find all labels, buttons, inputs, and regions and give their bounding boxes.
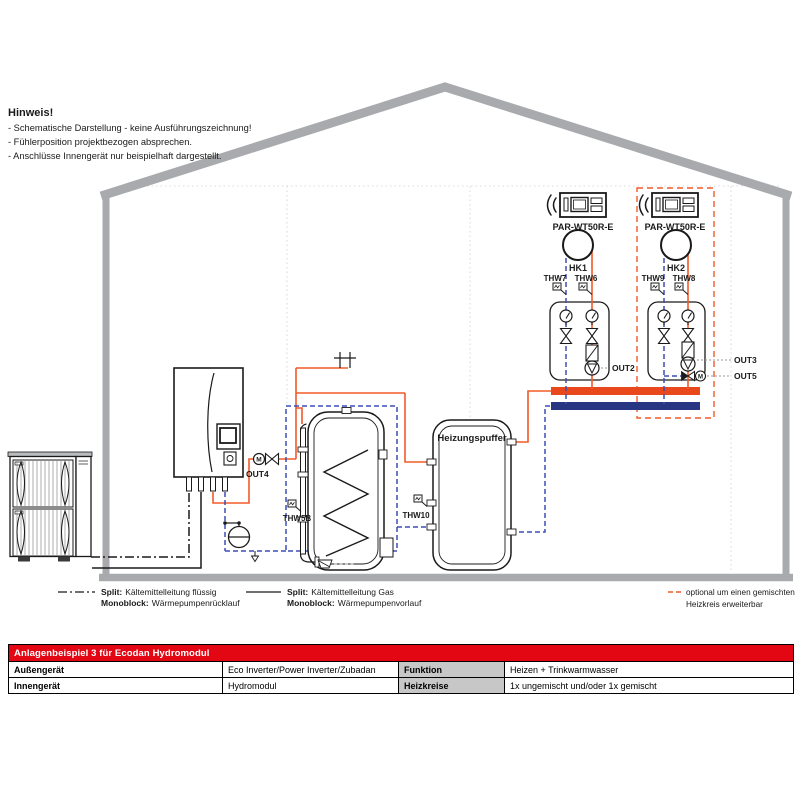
svg-text:THW10: THW10 [402, 511, 430, 520]
outdoor-unit [8, 452, 92, 562]
out4-label: OUT4 [246, 469, 269, 479]
heating-circuit-hk1: HK1 [563, 230, 593, 273]
return-manifold-bar [551, 402, 700, 410]
svg-text:M: M [256, 457, 261, 464]
out3-label: OUT3 [734, 355, 757, 365]
controller-hk1: PAR-WT50R-E [548, 193, 614, 232]
svg-text:Monoblock:Wärmepumpenrücklauf: Monoblock:Wärmepumpenrücklauf [101, 598, 240, 608]
legend-item-liquid: Split:Kältemittelleitung flüssig Monoblo… [58, 587, 240, 608]
row-value: Eco Inverter/Power Inverter/Zubadan [223, 662, 399, 677]
hinweis-item: - Anschlüsse Innengerät nur beispielhaft… [8, 151, 221, 161]
expansion-vessel [223, 521, 249, 547]
controller-hk2: PAR-WT50R-E [640, 193, 706, 232]
spec-table: Anlagenbeispiel 3 für Ecodan Hydromodul … [8, 644, 794, 694]
sensor-thw7: THW7 [544, 274, 567, 295]
buffer-tank-label: Heizungspuffer [437, 433, 506, 444]
fan-section-top [13, 460, 73, 507]
dhw-tank [298, 408, 393, 571]
table-row: Außengerät Eco Inverter/Power Inverter/Z… [9, 661, 793, 677]
table-row: Innengerät Hydromodul Heizkreise 1x unge… [9, 677, 793, 693]
wireless-signal-icon [646, 198, 649, 212]
row-label: Heizkreise [399, 678, 505, 693]
pump-icon [681, 357, 695, 371]
schematic-page: Hinweis! - Schematische Darstellung - ke… [0, 0, 800, 800]
out5-label: OUT5 [734, 371, 757, 381]
sensor-thw6: THW6 [575, 274, 598, 295]
svg-text:M: M [698, 375, 703, 381]
svg-text:THW9: THW9 [642, 274, 665, 283]
fan-section-bottom [13, 509, 73, 556]
svg-text:Monoblock:Wärmepumpenvorlauf: Monoblock:Wärmepumpenvorlauf [287, 598, 422, 608]
svg-text:THW6: THW6 [575, 274, 598, 283]
flow-manifold-bar [551, 387, 700, 395]
hinweis-item: - Schematische Darstellung - keine Ausfü… [8, 123, 251, 133]
svg-text:optional um einen gemischten: optional um einen gemischten [686, 588, 795, 597]
pump-group-hk1 [550, 302, 609, 380]
hinweis-note: Hinweis! - Schematische Darstellung - ke… [8, 107, 251, 161]
svg-text:Split:Kältemittelleitung flüss: Split:Kältemittelleitung flüssig [101, 587, 217, 597]
svg-text:THW8: THW8 [673, 274, 696, 283]
pipe-stubs [187, 477, 228, 491]
hinweis-item: - Fühlerposition projektbezogen absprech… [8, 137, 192, 147]
drain-valve-icon [252, 551, 259, 562]
row-value: Hydromodul [223, 678, 399, 693]
buffer-tank: Heizungspuffer [427, 420, 516, 570]
svg-text:HK1: HK1 [569, 263, 587, 273]
legend-item-gas: Split:Kältemittelleitung Gas Monoblock:W… [246, 587, 422, 608]
wireless-signal-icon [554, 198, 557, 212]
sensor-thw9: THW9 [642, 274, 665, 295]
sensor-thw5b: THW5B [283, 500, 312, 523]
heater-flange [380, 538, 393, 557]
spec-table-title: Anlagenbeispiel 3 für Ecodan Hydromodul [9, 645, 793, 661]
indoor-unit [174, 368, 243, 491]
row-label: Funktion [399, 662, 505, 677]
svg-text:THW7: THW7 [544, 274, 567, 283]
sensor-thw8: THW8 [673, 274, 696, 295]
svg-text:HK2: HK2 [667, 263, 685, 273]
svg-text:Heizkreis erweiterbar: Heizkreis erweiterbar [686, 600, 763, 609]
row-value: 1x ungemischt und/oder 1x gemischt [505, 678, 793, 693]
hinweis-title: Hinweis! [8, 107, 53, 119]
pump-icon [585, 361, 599, 375]
row-label: Innengerät [9, 678, 223, 693]
svg-text:Split:Kältemittelleitung Gas: Split:Kältemittelleitung Gas [287, 587, 394, 597]
svg-text:THW5B: THW5B [283, 514, 312, 523]
out2-label: OUT2 [612, 363, 635, 373]
row-label: Außengerät [9, 662, 223, 677]
row-value: Heizen + Trinkwarmwasser [505, 662, 793, 677]
air-vent-icon [334, 352, 356, 368]
legend-item-optional: optional um einen gemischten Heizkreis e… [668, 588, 795, 609]
pump-group-hk2 [648, 302, 705, 380]
dhw-diverting-valve: M OUT4 [246, 454, 279, 480]
sensor-thw10: THW10 [402, 495, 430, 520]
heating-circuit-hk2: HK2 [661, 230, 691, 273]
legend: Split:Kältemittelleitung flüssig Monoblo… [58, 587, 795, 609]
